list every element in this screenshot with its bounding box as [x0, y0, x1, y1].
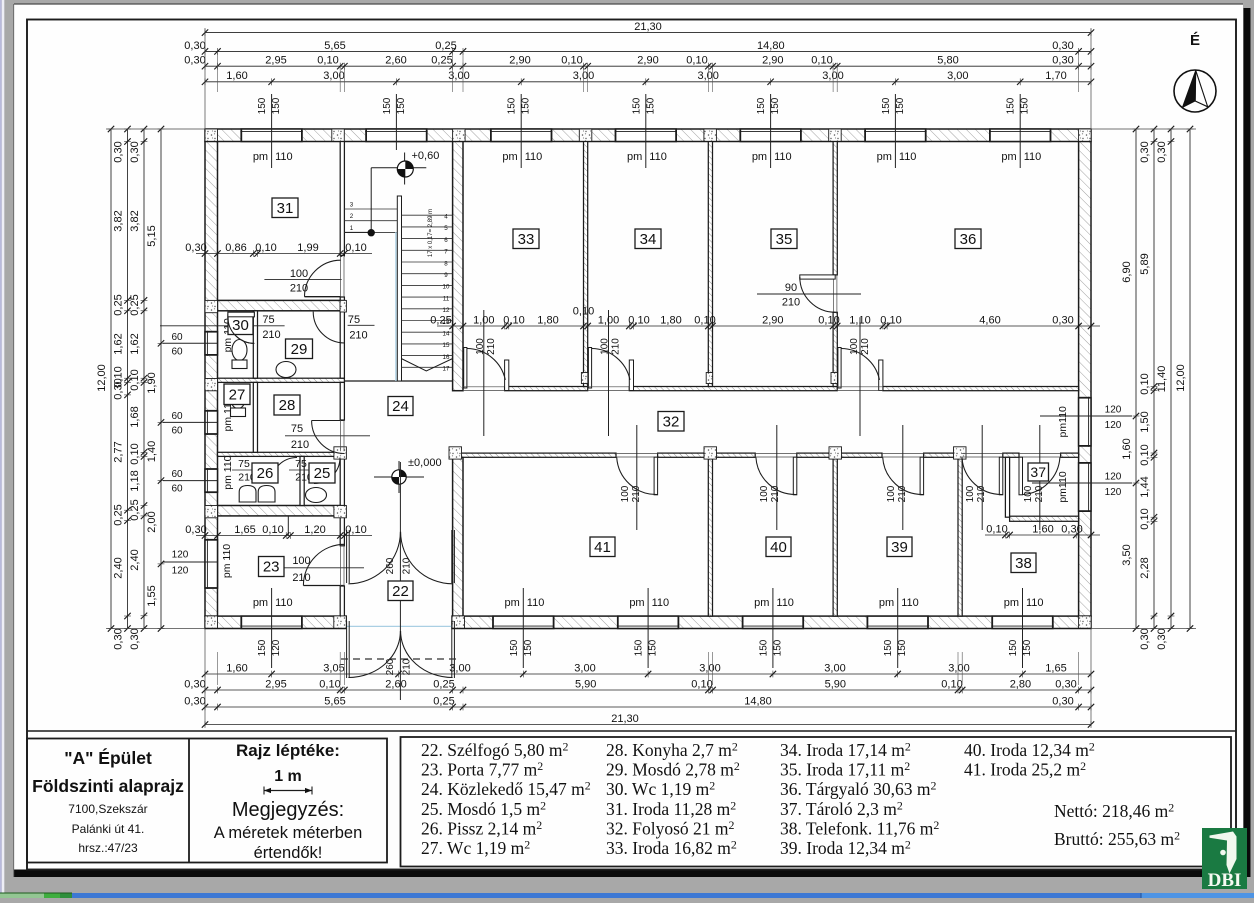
svg-text:39. Iroda 12,34 m2: 39. Iroda 12,34 m2 — [780, 838, 911, 859]
svg-text:34. Iroda 17,14 m2: 34. Iroda 17,14 m2 — [780, 740, 911, 761]
svg-text:26: 26 — [257, 465, 274, 482]
svg-text:23. Porta 7,77 m2: 23. Porta 7,77 m2 — [421, 759, 543, 780]
svg-text:210: 210 — [349, 330, 367, 342]
svg-text:1,50: 1,50 — [1139, 411, 1151, 432]
svg-text:pm: pm — [627, 151, 642, 163]
svg-text:É: É — [1190, 32, 1200, 49]
svg-text:22: 22 — [392, 583, 409, 600]
svg-text:120: 120 — [1105, 472, 1122, 483]
svg-text:0,30: 0,30 — [1156, 141, 1168, 162]
svg-text:0,30: 0,30 — [1052, 40, 1073, 52]
svg-text:75: 75 — [348, 314, 360, 326]
svg-text:29: 29 — [291, 341, 308, 358]
svg-text:28. Konyha 2,7 m2: 28. Konyha 2,7 m2 — [606, 740, 738, 761]
svg-text:27. Wc 1,19 m2: 27. Wc 1,19 m2 — [421, 838, 530, 859]
svg-text:33: 33 — [518, 231, 535, 248]
svg-text:210: 210 — [262, 329, 280, 341]
svg-text:0,10: 0,10 — [319, 678, 340, 690]
svg-text:120: 120 — [1105, 487, 1122, 498]
svg-text:1,70: 1,70 — [1045, 70, 1066, 82]
svg-text:90: 90 — [785, 282, 797, 294]
svg-text:0,30: 0,30 — [1052, 314, 1073, 326]
svg-text:pm: pm — [752, 151, 767, 163]
svg-text:pm: pm — [253, 151, 268, 163]
svg-text:0,10: 0,10 — [503, 314, 524, 326]
svg-text:150: 150 — [271, 97, 282, 114]
svg-text:31: 31 — [277, 200, 294, 217]
svg-text:21,30: 21,30 — [611, 713, 639, 725]
svg-text:2,90: 2,90 — [762, 55, 783, 67]
svg-text:1,60: 1,60 — [226, 70, 247, 82]
svg-text:0,10: 0,10 — [345, 242, 366, 254]
svg-text:150: 150 — [631, 97, 642, 114]
svg-text:2,40: 2,40 — [129, 549, 141, 570]
svg-text:150: 150 — [1022, 639, 1033, 656]
svg-text:39: 39 — [891, 539, 908, 556]
svg-text:1,99: 1,99 — [297, 242, 318, 254]
svg-text:41: 41 — [594, 539, 611, 556]
svg-text:36: 36 — [960, 231, 977, 248]
svg-text:5,90: 5,90 — [825, 678, 846, 690]
svg-text:pm: pm — [253, 597, 268, 609]
svg-text:110: 110 — [527, 597, 545, 609]
svg-text:100: 100 — [290, 268, 308, 280]
svg-text:150: 150 — [507, 97, 518, 114]
svg-text:40: 40 — [770, 539, 787, 556]
svg-text:1,80: 1,80 — [537, 314, 558, 326]
svg-text:0,10: 0,10 — [262, 524, 283, 536]
svg-text:0,30: 0,30 — [1052, 55, 1073, 67]
svg-text:"A" Épület: "A" Épület — [64, 747, 152, 768]
svg-text:260: 260 — [385, 557, 396, 574]
svg-text:Palánki út 41.: Palánki út 41. — [72, 822, 145, 836]
svg-text:210: 210 — [770, 485, 781, 502]
svg-text:pm: pm — [1001, 151, 1016, 163]
svg-text:hrsz.:47/23: hrsz.:47/23 — [78, 841, 138, 855]
svg-text:7: 7 — [444, 249, 448, 256]
svg-text:14,80: 14,80 — [744, 695, 772, 707]
svg-text:2: 2 — [350, 213, 354, 220]
svg-text:0,30: 0,30 — [185, 524, 206, 536]
svg-text:150: 150 — [645, 97, 656, 114]
svg-text:0,30: 0,30 — [1052, 695, 1073, 707]
svg-text:A méretek méterben: A méretek méterben — [214, 824, 363, 842]
svg-text:38. Telefonk. 11,76 m2: 38. Telefonk. 11,76 m2 — [780, 818, 939, 839]
svg-text:1,80: 1,80 — [660, 314, 681, 326]
svg-text:Megjegyzés:: Megjegyzés: — [232, 799, 344, 821]
svg-text:150: 150 — [772, 639, 783, 656]
svg-text:3,50: 3,50 — [1121, 544, 1133, 565]
svg-text:23: 23 — [263, 559, 280, 576]
svg-text:150: 150 — [1020, 97, 1031, 114]
svg-text:6,90: 6,90 — [1121, 261, 1133, 282]
svg-text:5,65: 5,65 — [324, 40, 345, 52]
svg-text:24. Közlekedő 15,47 m2: 24. Közlekedő 15,47 m2 — [421, 779, 591, 800]
svg-text:150: 150 — [881, 97, 892, 114]
svg-text:0,30: 0,30 — [184, 40, 205, 52]
svg-text:33. Iroda 16,82 m2: 33. Iroda 16,82 m2 — [606, 838, 737, 859]
svg-text:4: 4 — [444, 214, 448, 221]
svg-text:30. Wc 1,19 m2: 30. Wc 1,19 m2 — [606, 779, 715, 800]
svg-text:0,10: 0,10 — [941, 678, 962, 690]
svg-text:75: 75 — [262, 314, 274, 326]
svg-text:3: 3 — [350, 202, 354, 209]
svg-text:Rajz léptéke:: Rajz léptéke: — [236, 741, 340, 760]
svg-text:150: 150 — [883, 639, 894, 656]
svg-text:150: 150 — [382, 97, 393, 114]
svg-text:1,68: 1,68 — [129, 406, 141, 427]
svg-text:Bruttó: 255,63 m2: Bruttó: 255,63 m2 — [1054, 829, 1180, 850]
svg-text:100: 100 — [886, 485, 897, 502]
svg-text:DBI: DBI — [1208, 870, 1242, 891]
svg-text:1,44: 1,44 — [1139, 476, 1151, 497]
svg-text:0,10: 0,10 — [628, 314, 649, 326]
svg-text:12,00: 12,00 — [96, 364, 108, 392]
svg-text:150: 150 — [634, 639, 645, 656]
svg-text:0,30: 0,30 — [184, 55, 205, 67]
svg-text:+0,60: +0,60 — [412, 150, 440, 162]
svg-text:17: 17 — [443, 366, 450, 373]
svg-text:Földszinti alaprajz: Földszinti alaprajz — [32, 776, 184, 796]
svg-text:0,86: 0,86 — [225, 242, 246, 254]
svg-text:210: 210 — [292, 572, 310, 584]
svg-text:60: 60 — [171, 484, 183, 495]
svg-text:34: 34 — [640, 231, 657, 248]
svg-text:1,62: 1,62 — [113, 333, 125, 354]
svg-text:5: 5 — [444, 225, 448, 232]
svg-text:9: 9 — [444, 272, 448, 279]
svg-text:110: 110 — [652, 597, 670, 609]
svg-text:24: 24 — [392, 398, 409, 415]
svg-text:2,95: 2,95 — [265, 678, 286, 690]
svg-text:2,00: 2,00 — [146, 511, 158, 532]
svg-text:2,40: 2,40 — [113, 557, 125, 578]
svg-text:110: 110 — [776, 597, 794, 609]
svg-text:100: 100 — [965, 485, 976, 502]
svg-text:32: 32 — [663, 413, 680, 430]
svg-text:5,65: 5,65 — [324, 695, 345, 707]
svg-text:pm: pm — [505, 597, 520, 609]
svg-text:150: 150 — [756, 97, 767, 114]
svg-text:30: 30 — [232, 317, 249, 334]
svg-text:0,30: 0,30 — [113, 141, 125, 162]
svg-text:0,10: 0,10 — [561, 55, 582, 67]
svg-text:±0,000: ±0,000 — [408, 457, 442, 469]
svg-text:35: 35 — [776, 231, 793, 248]
svg-text:40. Iroda 12,34 m2: 40. Iroda 12,34 m2 — [964, 740, 1095, 761]
svg-text:7100,Szekszár: 7100,Szekszár — [68, 802, 147, 816]
svg-text:2,60: 2,60 — [385, 55, 406, 67]
svg-text:22. Szélfogó 5,80 m2: 22. Szélfogó 5,80 m2 — [421, 740, 568, 761]
svg-text:41. Iroda 25,2 m2: 41. Iroda 25,2 m2 — [964, 759, 1086, 780]
svg-text:3,05: 3,05 — [323, 662, 344, 674]
svg-text:210: 210 — [290, 283, 308, 295]
svg-text:110: 110 — [901, 597, 919, 609]
svg-text:1,90: 1,90 — [146, 372, 158, 393]
svg-text:75: 75 — [291, 423, 303, 435]
svg-text:11,40: 11,40 — [1156, 366, 1168, 393]
svg-text:110: 110 — [774, 151, 792, 163]
svg-text:0,10: 0,10 — [345, 524, 366, 536]
svg-text:100: 100 — [600, 338, 611, 355]
svg-text:1,20: 1,20 — [304, 524, 325, 536]
svg-text:0,25: 0,25 — [129, 499, 141, 520]
svg-text:210: 210 — [782, 297, 800, 309]
svg-text:0,30: 0,30 — [185, 242, 206, 254]
svg-text:0,10: 0,10 — [1139, 373, 1151, 394]
svg-text:6: 6 — [444, 237, 448, 244]
svg-text:210: 210 — [611, 338, 622, 355]
svg-text:4,60: 4,60 — [979, 314, 1000, 326]
svg-text:260: 260 — [385, 658, 396, 675]
svg-text:0,25: 0,25 — [431, 55, 452, 67]
svg-text:31. Iroda 11,28 m2: 31. Iroda 11,28 m2 — [606, 798, 736, 819]
svg-text:0,10: 0,10 — [986, 523, 1007, 535]
svg-text:3,82: 3,82 — [113, 210, 125, 231]
svg-text:3,00: 3,00 — [699, 662, 720, 674]
svg-text:3,00: 3,00 — [448, 70, 469, 82]
svg-text:21,30: 21,30 — [634, 21, 662, 33]
svg-text:3,00: 3,00 — [948, 662, 969, 674]
svg-text:60: 60 — [171, 346, 183, 357]
svg-text:27: 27 — [229, 386, 246, 403]
svg-text:1,00: 1,00 — [598, 314, 619, 326]
svg-text:pm 110: pm 110 — [221, 544, 233, 578]
svg-text:3,00: 3,00 — [824, 662, 845, 674]
svg-text:pm 110: pm 110 — [222, 455, 234, 489]
svg-text:3,00: 3,00 — [449, 662, 470, 674]
svg-text:210: 210 — [291, 439, 309, 451]
svg-text:2,90: 2,90 — [509, 55, 530, 67]
svg-text:0,25: 0,25 — [129, 294, 141, 315]
svg-text:pm: pm — [879, 597, 894, 609]
svg-text:26. Pissz 2,14 m2: 26. Pissz 2,14 m2 — [421, 818, 542, 839]
svg-text:210: 210 — [402, 658, 413, 675]
svg-text:0,10: 0,10 — [1139, 508, 1151, 529]
svg-text:0,30: 0,30 — [113, 378, 125, 399]
svg-text:0,30: 0,30 — [184, 678, 205, 690]
svg-text:1,18: 1,18 — [129, 470, 141, 491]
svg-text:értendők!: értendők! — [254, 844, 323, 862]
svg-text:1: 1 — [350, 225, 354, 232]
svg-text:1,60: 1,60 — [226, 662, 247, 674]
svg-text:25: 25 — [314, 465, 331, 482]
svg-text:120: 120 — [1105, 420, 1122, 431]
svg-text:110: 110 — [525, 151, 543, 163]
svg-text:32. Folyosó 21 m2: 32. Folyosó 21 m2 — [606, 818, 735, 839]
svg-text:12,00: 12,00 — [1175, 364, 1187, 392]
svg-text:pm: pm — [754, 597, 769, 609]
svg-text:120: 120 — [172, 550, 189, 561]
svg-text:1,65: 1,65 — [1045, 662, 1066, 674]
svg-text:38: 38 — [1015, 555, 1032, 572]
svg-text:0,30: 0,30 — [1139, 141, 1151, 162]
svg-text:60: 60 — [171, 411, 183, 422]
svg-text:110: 110 — [899, 151, 917, 163]
svg-text:11: 11 — [443, 295, 450, 302]
svg-text:3,00: 3,00 — [323, 70, 344, 82]
svg-text:150: 150 — [1006, 97, 1017, 114]
svg-text:1,62: 1,62 — [129, 333, 141, 354]
svg-text:0,10: 0,10 — [811, 55, 832, 67]
svg-text:3,82: 3,82 — [129, 210, 141, 231]
svg-text:0,10: 0,10 — [818, 314, 839, 326]
svg-text:5,80: 5,80 — [937, 55, 958, 67]
svg-text:0,30: 0,30 — [113, 628, 125, 649]
svg-text:210: 210 — [402, 557, 413, 574]
svg-text:110: 110 — [1024, 151, 1042, 163]
svg-text:0,25: 0,25 — [430, 314, 451, 326]
svg-text:0,30: 0,30 — [184, 695, 205, 707]
svg-text:75: 75 — [238, 458, 250, 470]
svg-text:75: 75 — [295, 458, 307, 470]
svg-text:0,10: 0,10 — [317, 55, 338, 67]
svg-text:0,25: 0,25 — [113, 504, 125, 525]
svg-text:8: 8 — [444, 260, 448, 267]
svg-text:0,10: 0,10 — [573, 306, 594, 318]
svg-text:110: 110 — [275, 151, 293, 163]
svg-text:29. Mosdó 2,78 m2: 29. Mosdó 2,78 m2 — [606, 759, 740, 780]
svg-text:pm: pm — [502, 151, 517, 163]
svg-text:37: 37 — [1030, 464, 1046, 480]
svg-text:0,30: 0,30 — [1156, 628, 1168, 649]
svg-text:2,77: 2,77 — [113, 441, 125, 462]
svg-text:35. Iroda 17,11 m2: 35. Iroda 17,11 m2 — [780, 759, 910, 780]
svg-text:100: 100 — [620, 485, 631, 502]
svg-text:100: 100 — [475, 338, 486, 355]
svg-text:1,10: 1,10 — [849, 314, 870, 326]
svg-text:pm: pm — [877, 151, 892, 163]
svg-text:150: 150 — [257, 639, 268, 656]
svg-text:0,30: 0,30 — [1055, 678, 1076, 690]
svg-text:0,10: 0,10 — [129, 369, 141, 390]
svg-text:150: 150 — [758, 639, 769, 656]
svg-text:0,10: 0,10 — [255, 242, 276, 254]
svg-text:25. Mosdó 1,5 m2: 25. Mosdó 1,5 m2 — [421, 798, 546, 819]
svg-text:1,40: 1,40 — [146, 441, 158, 462]
svg-text:12: 12 — [443, 307, 450, 314]
svg-text:2,60: 2,60 — [385, 678, 406, 690]
svg-text:1,60: 1,60 — [1032, 523, 1053, 535]
svg-text:15: 15 — [443, 342, 450, 349]
svg-text:100: 100 — [1023, 485, 1034, 502]
svg-text:0,10: 0,10 — [880, 314, 901, 326]
svg-text:150: 150 — [648, 639, 659, 656]
svg-text:3,00: 3,00 — [574, 662, 595, 674]
svg-text:120: 120 — [172, 566, 189, 577]
svg-text:0,25: 0,25 — [433, 678, 454, 690]
svg-text:3,00: 3,00 — [947, 70, 968, 82]
svg-text:150: 150 — [509, 639, 520, 656]
svg-text:0,30: 0,30 — [129, 628, 141, 649]
svg-text:120: 120 — [1105, 405, 1122, 416]
svg-text:14,80: 14,80 — [757, 40, 785, 52]
svg-text:1,60: 1,60 — [1121, 438, 1133, 459]
svg-text:2,90: 2,90 — [762, 314, 783, 326]
svg-text:17 x 0,17= 2,89 m: 17 x 0,17= 2,89 m — [428, 209, 434, 257]
svg-text:37. Tároló 2,3 m2: 37. Tároló 2,3 m2 — [780, 798, 903, 819]
svg-text:pm: pm — [1004, 597, 1019, 609]
svg-text:0,25: 0,25 — [435, 40, 456, 52]
svg-text:60: 60 — [171, 332, 183, 343]
svg-text:150: 150 — [770, 97, 781, 114]
svg-text:10: 10 — [443, 284, 450, 291]
svg-text:1,55: 1,55 — [146, 585, 158, 606]
svg-text:0,30: 0,30 — [1061, 523, 1082, 535]
svg-text:150: 150 — [897, 639, 908, 656]
svg-text:0,10: 0,10 — [691, 678, 712, 690]
svg-text:28: 28 — [279, 397, 296, 414]
svg-text:5,89: 5,89 — [1139, 253, 1151, 274]
svg-text:110: 110 — [649, 151, 667, 163]
svg-text:0,10: 0,10 — [686, 55, 707, 67]
svg-text:100: 100 — [849, 338, 860, 355]
svg-text:0,30: 0,30 — [1139, 628, 1151, 649]
svg-text:210: 210 — [860, 338, 871, 355]
svg-text:60: 60 — [171, 469, 183, 480]
svg-text:0,10: 0,10 — [129, 443, 141, 464]
svg-text:120: 120 — [271, 639, 282, 656]
svg-text:2,28: 2,28 — [1139, 557, 1151, 578]
svg-text:0,10: 0,10 — [694, 314, 715, 326]
svg-text:110: 110 — [1026, 597, 1044, 609]
svg-text:0,25: 0,25 — [433, 695, 454, 707]
svg-text:5,15: 5,15 — [146, 225, 158, 246]
svg-text:36. Tárgyaló 30,63 m2: 36. Tárgyaló 30,63 m2 — [780, 779, 937, 800]
svg-text:0,30: 0,30 — [129, 141, 141, 162]
svg-text:5,90: 5,90 — [575, 678, 596, 690]
svg-text:Nettó: 218,46 m2: Nettó: 218,46 m2 — [1054, 801, 1174, 822]
svg-text:0,10: 0,10 — [1139, 444, 1151, 465]
svg-text:pm110: pm110 — [1057, 471, 1069, 502]
svg-text:150: 150 — [523, 639, 534, 656]
svg-text:210: 210 — [486, 338, 497, 355]
svg-text:150: 150 — [521, 97, 532, 114]
svg-text:2,90: 2,90 — [637, 55, 658, 67]
svg-text:1 m: 1 m — [274, 768, 302, 785]
svg-text:100: 100 — [759, 485, 770, 502]
svg-text:2,95: 2,95 — [265, 55, 286, 67]
svg-text:60: 60 — [171, 425, 183, 436]
svg-text:100: 100 — [292, 555, 310, 567]
svg-text:14: 14 — [443, 331, 450, 338]
svg-text:1,65: 1,65 — [234, 524, 255, 536]
svg-text:pm110: pm110 — [1057, 406, 1069, 437]
svg-text:pm: pm — [629, 597, 644, 609]
svg-text:150: 150 — [895, 97, 906, 114]
svg-text:2,80: 2,80 — [1010, 678, 1031, 690]
svg-text:1,00: 1,00 — [473, 314, 494, 326]
svg-text:110: 110 — [275, 597, 293, 609]
svg-text:150: 150 — [396, 97, 407, 114]
svg-text:150: 150 — [1008, 639, 1019, 656]
svg-text:0,25: 0,25 — [113, 294, 125, 315]
svg-text:150: 150 — [257, 97, 268, 114]
